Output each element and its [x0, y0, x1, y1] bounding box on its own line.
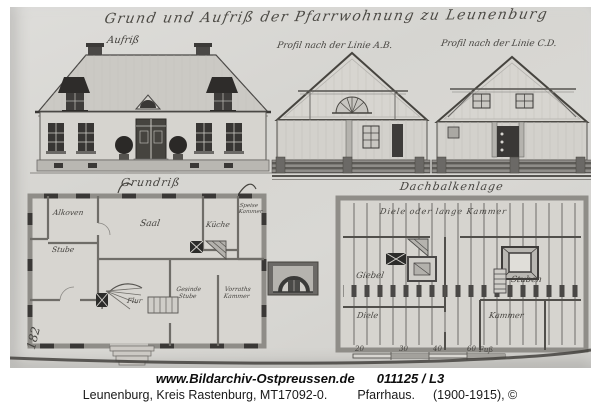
scale-tick-40: 40: [433, 345, 442, 353]
arch-detail-drawing: [268, 262, 318, 295]
scale-tick-30: 30: [399, 345, 408, 353]
caption-archive-url: www.Bildarchiv-Ostpreussen.de: [156, 371, 355, 386]
room-label-flur: Flur: [126, 298, 142, 305]
section-ab-label: Profil nach der Linie A.B.: [276, 42, 393, 51]
room-label-gesindestube: Gesinde Stube: [171, 287, 205, 301]
room-label-speisekammer: Speise Kammer: [238, 203, 258, 216]
archive-image-page: Grund und Aufriß der Pfarrwohnung zu Leu…: [0, 0, 600, 409]
attic-room-diele: Diele: [356, 312, 378, 320]
shrub-left: [115, 136, 133, 154]
room-label-saal: Saal: [139, 220, 160, 229]
caption-image-id: 011125 / L3: [377, 371, 444, 386]
attic-room-kammer: Kammer: [488, 312, 524, 320]
drawing-title: Grund und Aufriß der Pfarrwohnung zu Leu…: [103, 8, 506, 26]
caption-line1: www.Bildarchiv-Ostpreussen.de 011125 / L…: [0, 371, 600, 386]
section-ab-drawing: [272, 53, 430, 173]
caption-location: Leunenburg, Kreis Rastenburg, MT17092-0.: [83, 388, 328, 402]
attic-room-lange-kammer: Diele oder lange Kammer: [379, 208, 507, 216]
elevation-label: Aufriß: [106, 36, 140, 46]
section-cd-label: Profil nach der Linie C.D.: [440, 40, 557, 49]
shrub-right: [169, 136, 187, 154]
attic-room-giebel: Giebel: [355, 272, 384, 281]
caption-date: (1900-1915), ©: [433, 388, 517, 402]
section-door: [497, 126, 519, 157]
room-label-kueche: Küche: [205, 221, 230, 229]
room-label-vorrathskammer: Vorraths Kammer: [219, 287, 255, 301]
caption-building: Pfarrhaus.: [357, 388, 415, 402]
elevation-drawing: [30, 43, 276, 173]
scale-tick-20: 20: [355, 345, 364, 353]
caption-line2: Leunenburg, Kreis Rastenburg, MT17092-0.…: [0, 388, 600, 402]
room-label-alkoven: Alkoven: [52, 209, 84, 217]
ground-plan-label: Grundriß: [120, 177, 181, 188]
scale-unit-label: Fuß: [479, 346, 493, 354]
room-label-stube: Stube: [51, 246, 74, 254]
attic-room-stuben: Stuben: [510, 276, 542, 285]
attic-plan-label: Dachbalkenlage: [399, 181, 504, 192]
scale-tick-60: 60: [467, 345, 476, 353]
